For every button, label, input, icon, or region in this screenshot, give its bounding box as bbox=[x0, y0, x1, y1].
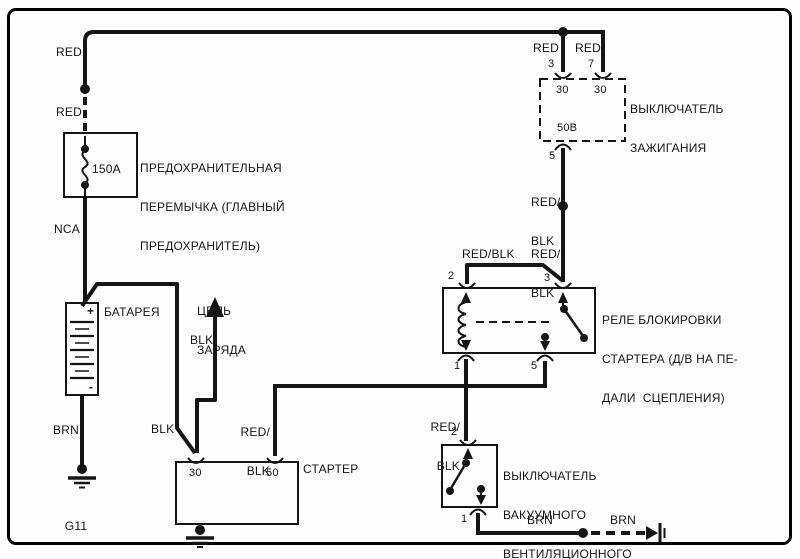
relay-label-line: РЕЛЕ БЛОКИРОВКИ bbox=[602, 314, 738, 327]
wire-label-red: RED bbox=[56, 106, 82, 119]
ground-right-icon bbox=[646, 523, 665, 543]
battery-minus-sign: - bbox=[89, 381, 93, 394]
vacuum-switch-label: ВЫКЛЮЧАТЕЛЬ ВАКУУМНОГО ВЕНТИЛЯЦИОННОГО К… bbox=[503, 444, 642, 559]
main-power-wire bbox=[80, 32, 563, 133]
relay-pin-5: 5 bbox=[531, 360, 537, 373]
ignition-pin-7: 7 bbox=[588, 58, 594, 71]
wire-label-line: BLK bbox=[228, 465, 270, 478]
wire-label-redblk: RED/ BLK bbox=[228, 400, 270, 504]
wire-label-line: RED/ bbox=[531, 248, 560, 261]
wire-label-blk: BLK bbox=[151, 423, 174, 436]
relay-block bbox=[443, 283, 595, 361]
relay-pin-3: 3 bbox=[544, 272, 550, 285]
relay-coil-icon bbox=[459, 292, 472, 351]
wire-label-red: RED bbox=[533, 42, 559, 55]
fuse-label-line: ПРЕДОХРАНИТЕЛЬНАЯ bbox=[140, 162, 285, 175]
ignition-label-line: ЗАЖИГАНИЯ bbox=[630, 142, 724, 155]
wire-label-red: RED bbox=[56, 46, 82, 59]
charge-circuit-line: ЦЕПЬ bbox=[197, 305, 246, 318]
battery-ground bbox=[68, 395, 96, 488]
vacuum-label-line: ВЫКЛЮЧАТЕЛЬ bbox=[503, 470, 642, 483]
starter-label: СТАРТЕР bbox=[303, 463, 358, 476]
starter-terminal-50: 50 bbox=[266, 467, 279, 480]
fuse-icon bbox=[81, 136, 89, 197]
vacuum-label-line: ВЕНТИЛЯЦИОННОГО bbox=[503, 548, 642, 559]
vacuum-pin-1: 1 bbox=[461, 513, 467, 526]
ignition-pin-5: 5 bbox=[549, 150, 555, 163]
fuse-rating: 150A bbox=[92, 163, 121, 176]
wire-label-brn: BRN bbox=[53, 424, 79, 437]
ignition-terminal-50b: 50B bbox=[557, 122, 577, 135]
relay-label-line: ДАЛИ СЦЕПЛЕНИЯ) bbox=[602, 392, 738, 405]
wire-label-red: RED bbox=[575, 42, 601, 55]
wire-label-redblk: RED/BLK bbox=[462, 248, 515, 261]
ignition-switch-label: ВЫКЛЮЧАТЕЛЬ ЗАЖИГАНИЯ bbox=[630, 77, 724, 181]
fuse-label-line: ПРЕДОХРАНИТЕЛЬ) bbox=[140, 240, 285, 253]
wire-label-line: BLK bbox=[420, 460, 460, 473]
fuse-label: ПРЕДОХРАНИТЕЛЬНАЯ ПЕРЕМЫЧКА (ГЛАВНЫЙ ПРЕ… bbox=[140, 136, 285, 279]
wire-label-line: RED/ bbox=[531, 196, 560, 209]
battery-plates bbox=[70, 322, 94, 378]
fuse-element bbox=[82, 151, 87, 183]
wire-label-line: RED/ bbox=[228, 426, 270, 439]
wire-label-line: BLK bbox=[531, 287, 560, 300]
wire bbox=[85, 32, 563, 90]
ground-id: G11 bbox=[20, 520, 132, 533]
connector-icon bbox=[555, 73, 571, 78]
battery-plus-sign: + bbox=[87, 305, 94, 318]
fuse-contact-dot bbox=[81, 181, 89, 189]
relay-pin-1: 1 bbox=[454, 360, 460, 373]
relay-pin-2: 2 bbox=[448, 270, 454, 283]
battery-ground-label: G11 (БЛОК БАТАРЕИ) bbox=[20, 494, 132, 559]
relay-label: РЕЛЕ БЛОКИРОВКИ СТАРТЕРА (Д/В НА ПЕ- ДАЛ… bbox=[602, 288, 738, 431]
ignition-label-line: ВЫКЛЮЧАТЕЛЬ bbox=[630, 103, 724, 116]
wire-label-brn: BRN bbox=[527, 514, 553, 527]
ignition-switch-box bbox=[540, 79, 625, 141]
fuse-block bbox=[64, 133, 137, 303]
connector-icon bbox=[595, 73, 611, 78]
junction-dot bbox=[80, 84, 90, 94]
ignition-pin-3: 3 bbox=[548, 58, 554, 71]
wiring-diagram-page: RED RED 150A ПРЕДОХРАНИТЕЛЬНАЯ ПЕРЕМЫЧКА… bbox=[0, 0, 800, 559]
charge-circuit-label: ЦЕПЬ ЗАРЯДА bbox=[197, 279, 246, 383]
ignition-terminal-30b: 30 bbox=[594, 84, 607, 97]
ground-icon bbox=[68, 464, 96, 488]
wire-label-blk: BLK bbox=[190, 334, 213, 347]
battery-label: БАТАРЕЯ bbox=[104, 306, 160, 319]
relay-label-line: СТАРТЕРА (Д/В НА ПЕ- bbox=[602, 353, 738, 366]
wire-label-brn: BRN bbox=[610, 514, 636, 527]
ignition-terminal-30a: 30 bbox=[556, 84, 569, 97]
vacuum-pin-2: 2 bbox=[451, 426, 457, 439]
wire-label-redblk: RED/ BLK bbox=[420, 395, 460, 499]
starter-terminal-30: 30 bbox=[189, 467, 202, 480]
fuse-label-line: ПЕРЕМЫЧКА (ГЛАВНЫЙ bbox=[140, 201, 285, 214]
ground-icon bbox=[186, 524, 214, 547]
starter-solenoid-wire bbox=[275, 361, 545, 456]
wire-label-nca: NCA bbox=[54, 223, 80, 236]
connector-icon bbox=[537, 356, 553, 362]
